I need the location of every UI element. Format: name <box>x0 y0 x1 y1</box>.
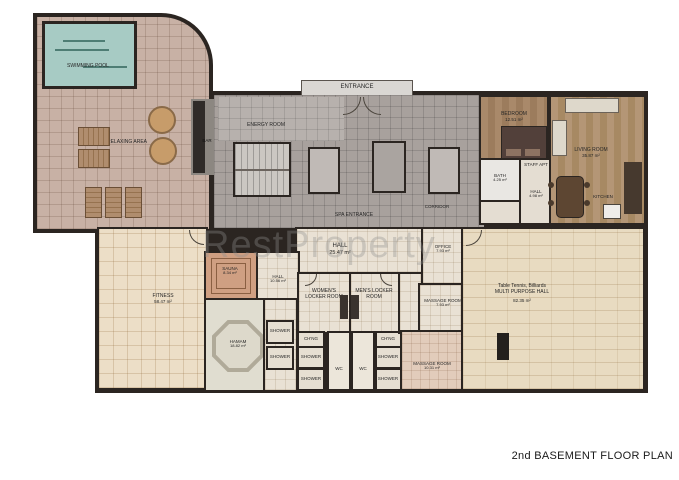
apartment-hall-lower <box>479 200 521 225</box>
multi-purpose-hall <box>461 227 645 391</box>
dining-chair <box>584 182 590 188</box>
dining-chair <box>584 200 590 206</box>
wc-stall <box>351 331 375 391</box>
apartment-hall <box>519 158 551 225</box>
massage-room-2 <box>400 330 465 391</box>
bathroom <box>479 158 521 202</box>
fitness-room <box>97 227 208 390</box>
dining-chair <box>548 182 554 188</box>
bed <box>501 126 547 160</box>
lounger <box>78 149 110 168</box>
locker-bank <box>351 295 359 319</box>
sofa <box>565 98 619 113</box>
plan-title: 2nd BASEMENT FLOOR PLAN <box>512 450 673 462</box>
swimming-pool <box>42 21 137 89</box>
shower-stall <box>375 368 402 391</box>
elevator-shaft <box>372 141 406 193</box>
locker-bank <box>340 295 348 319</box>
floor-plan-page: ENTRANCE SWIMMING POOL RELAXING AREA BAR… <box>0 0 679 480</box>
lounger <box>78 127 110 146</box>
pillow <box>506 149 521 156</box>
lounger <box>125 187 142 218</box>
shower-stall <box>375 346 402 369</box>
elevator-shaft <box>308 147 340 194</box>
hamam-platform-top <box>216 324 260 368</box>
bar-counter <box>193 101 205 173</box>
round-table <box>149 137 177 165</box>
pillow <box>525 149 540 156</box>
watermark: RestProperty <box>202 224 436 267</box>
pool-lane-line <box>63 40 105 42</box>
elevator-shaft <box>428 147 460 194</box>
stairwell <box>233 142 291 197</box>
pool-lane-line <box>83 66 127 68</box>
shower-stall <box>297 346 325 369</box>
kitchen-counter <box>624 162 642 214</box>
stair-divider <box>235 169 289 171</box>
sofa <box>552 120 567 156</box>
lounger <box>105 187 122 218</box>
wc-stall <box>327 331 351 391</box>
shower-stall <box>297 368 325 391</box>
dining-chair <box>548 200 554 206</box>
lounger <box>85 187 102 218</box>
multi-hall-column <box>497 333 509 360</box>
pool-lane-line <box>55 49 109 51</box>
shower-corridor <box>263 298 298 392</box>
shower-stall <box>266 346 294 370</box>
energy-room <box>218 97 344 141</box>
dining-table <box>556 176 584 218</box>
shower-stall <box>266 320 294 344</box>
kitchen-appliance <box>603 204 621 219</box>
round-table <box>148 106 176 134</box>
